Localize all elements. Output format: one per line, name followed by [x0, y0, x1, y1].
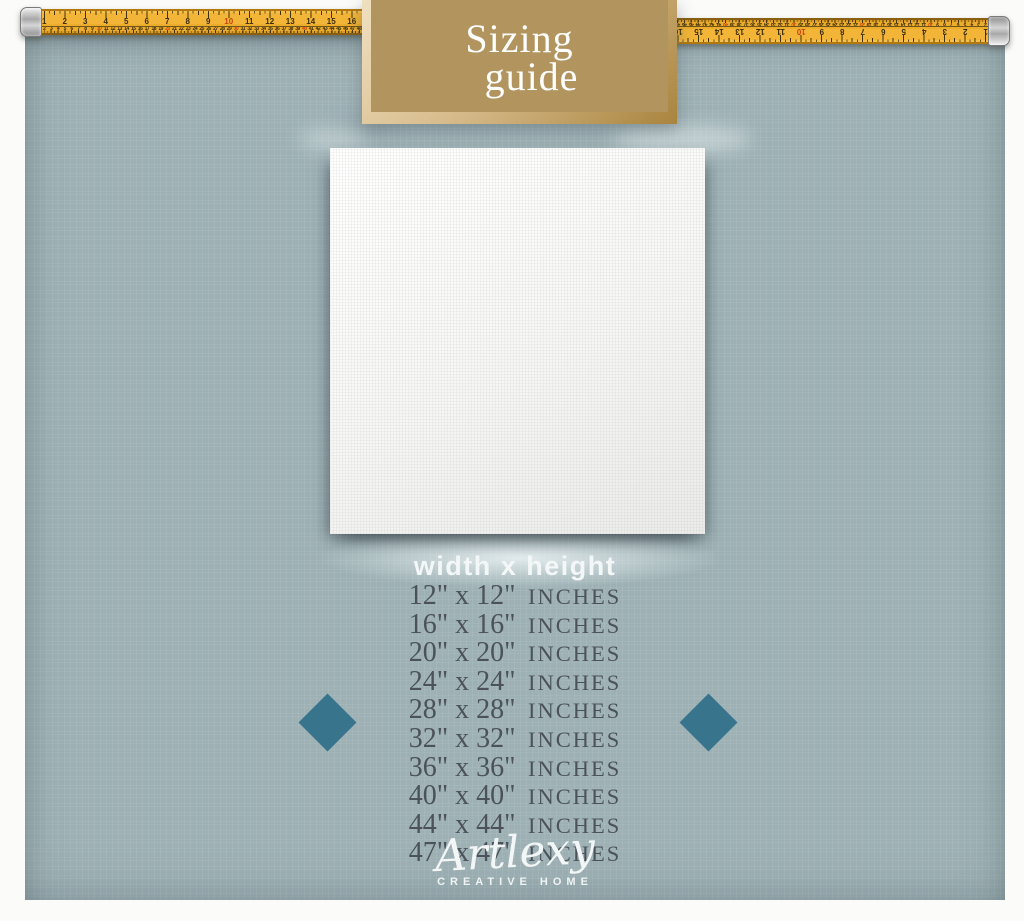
- sizing-guide-banner-inner: Sizing guide: [371, 0, 668, 112]
- tape-inch-number: 7: [853, 27, 874, 36]
- size-dimensions: 16" x 16": [409, 609, 516, 640]
- size-unit-label: INCHES: [528, 641, 621, 666]
- banner-title-line1: Sizing: [465, 20, 573, 58]
- size-unit-label: INCHES: [528, 670, 621, 695]
- tape-inch-number: 11: [771, 27, 792, 36]
- size-dimensions: 40" x 40": [409, 780, 516, 811]
- tape-inch-number: 10: [791, 27, 812, 36]
- tape-inch-number: 9: [812, 27, 833, 36]
- size-unit-label: INCHES: [528, 584, 621, 609]
- size-unit-label: INCHES: [528, 727, 621, 752]
- tape-inch-number: 14: [709, 27, 730, 36]
- tape-inch-number: 15: [689, 27, 710, 36]
- tape-inch-number: 4: [914, 27, 935, 36]
- size-unit-label: INCHES: [528, 784, 621, 809]
- size-dimensions: 20" x 20": [409, 637, 516, 668]
- tape-metal-tip-icon: [988, 16, 1010, 46]
- size-dimensions: 28" x 28": [409, 694, 516, 725]
- tape-inch-number: 6: [873, 27, 894, 36]
- size-unit-label: INCHES: [528, 613, 621, 638]
- size-dimensions: 12" x 12": [409, 580, 516, 611]
- sizing-guide-image: 1234567891011121314151617181920 12345678…: [0, 0, 1024, 921]
- brand-tagline: CREATIVE HOME: [25, 876, 1005, 888]
- size-unit-label: INCHES: [528, 756, 621, 781]
- tape-inch-number: 8: [832, 27, 853, 36]
- tape-inch-number: 2: [955, 27, 976, 36]
- width-height-header: width x height: [25, 551, 1005, 582]
- size-dimensions: 32" x 32": [409, 723, 516, 754]
- banner-title-line2: guide: [485, 58, 579, 96]
- shadow-wisp: [298, 130, 368, 148]
- tape-metal-tip-icon: [20, 7, 42, 37]
- sizing-guide-banner: Sizing guide: [362, 0, 677, 124]
- tape-inch-number: 12: [750, 27, 771, 36]
- tape-inch-number: 5: [894, 27, 915, 36]
- size-dimensions: 24" x 24": [409, 666, 516, 697]
- tape-inch-number: 13: [730, 27, 751, 36]
- blank-canvas-preview: [330, 148, 705, 534]
- tape-inch-number: 3: [935, 27, 956, 36]
- size-unit-label: INCHES: [528, 698, 621, 723]
- size-dimensions: 36" x 36": [409, 752, 516, 783]
